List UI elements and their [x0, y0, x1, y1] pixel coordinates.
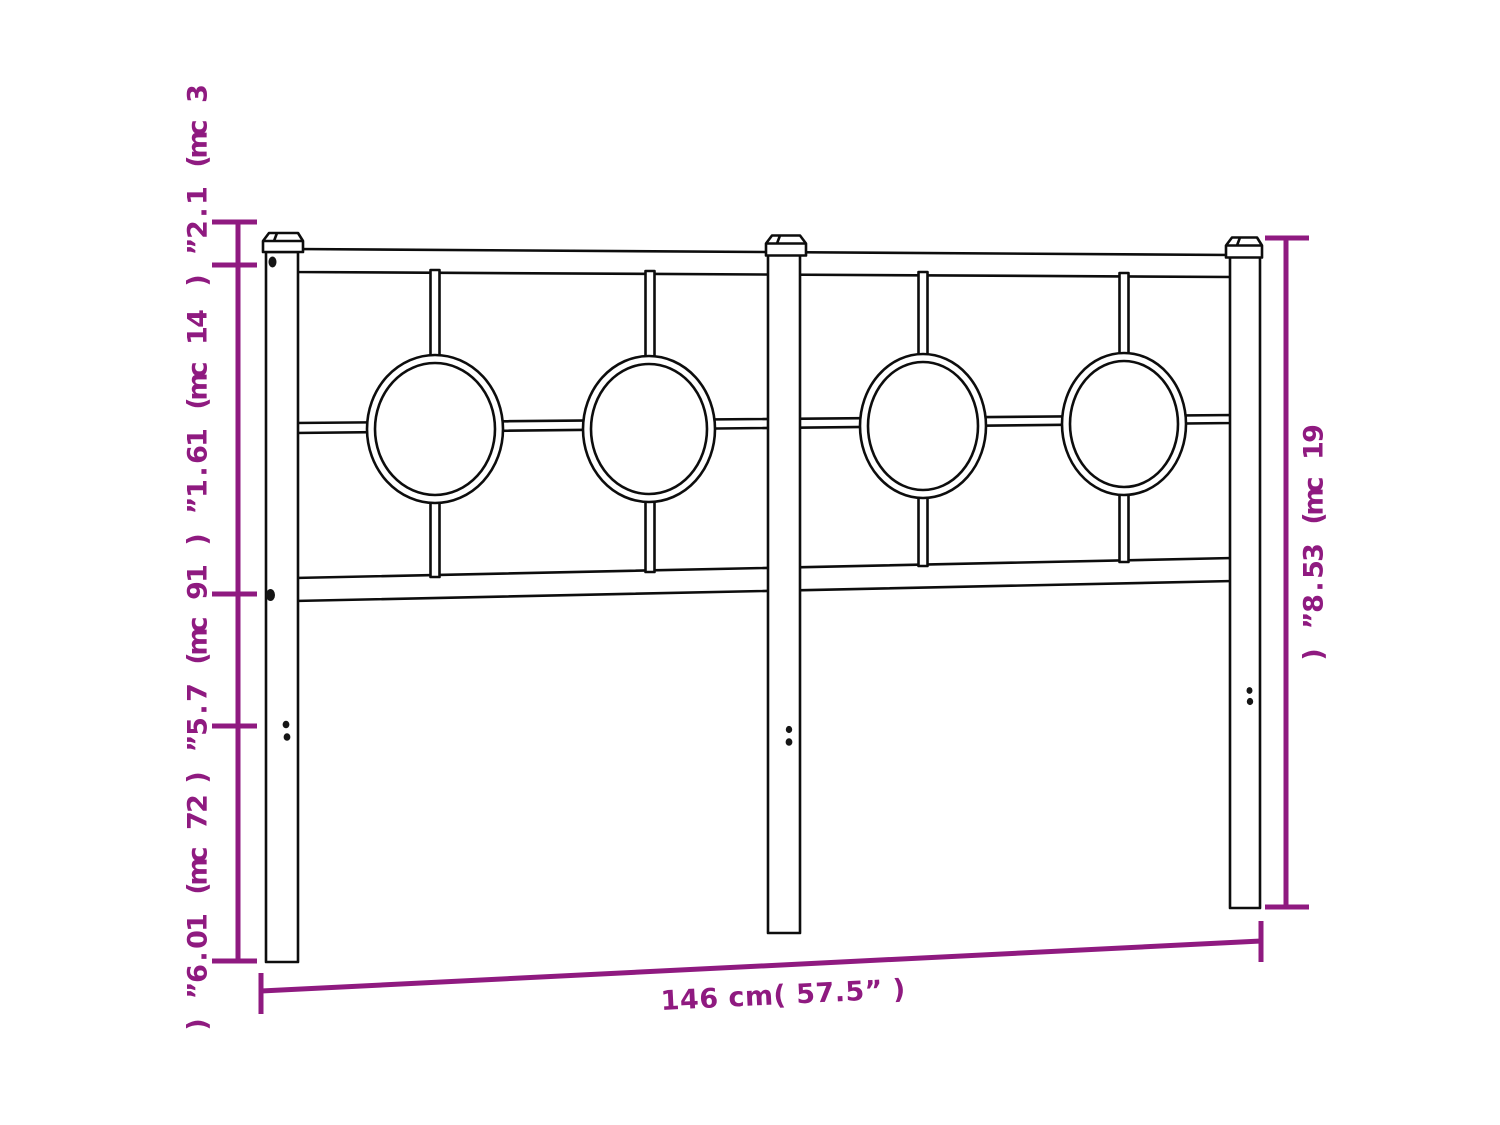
- left-post: [266, 252, 298, 962]
- dimension-diagram: 3 cm( 1.2” ) 41 cm( 16.1” ) 19 cm( 7.5” …: [0, 0, 1500, 1125]
- dimension-label-leg-height: 27 cm( 10.6” ): [176, 795, 220, 1033]
- dimension-label-panel-height: 41 cm( 16.1” ): [176, 310, 220, 548]
- dimension-label-total-height: 91 cm( 35.8” ): [1292, 425, 1336, 663]
- middle-post: [768, 255, 800, 933]
- headboard: [263, 233, 1262, 962]
- right-post: [1230, 257, 1260, 908]
- dimension-label-rail-gap: 19 cm( 7.5” ): [176, 565, 220, 786]
- dimension-label-cap-height: 3 cm( 1.2” ): [176, 85, 220, 289]
- screw-holes: [266, 257, 1253, 746]
- headboard-line-drawing: [0, 0, 1500, 1125]
- dimension-lines: [212, 222, 1309, 1014]
